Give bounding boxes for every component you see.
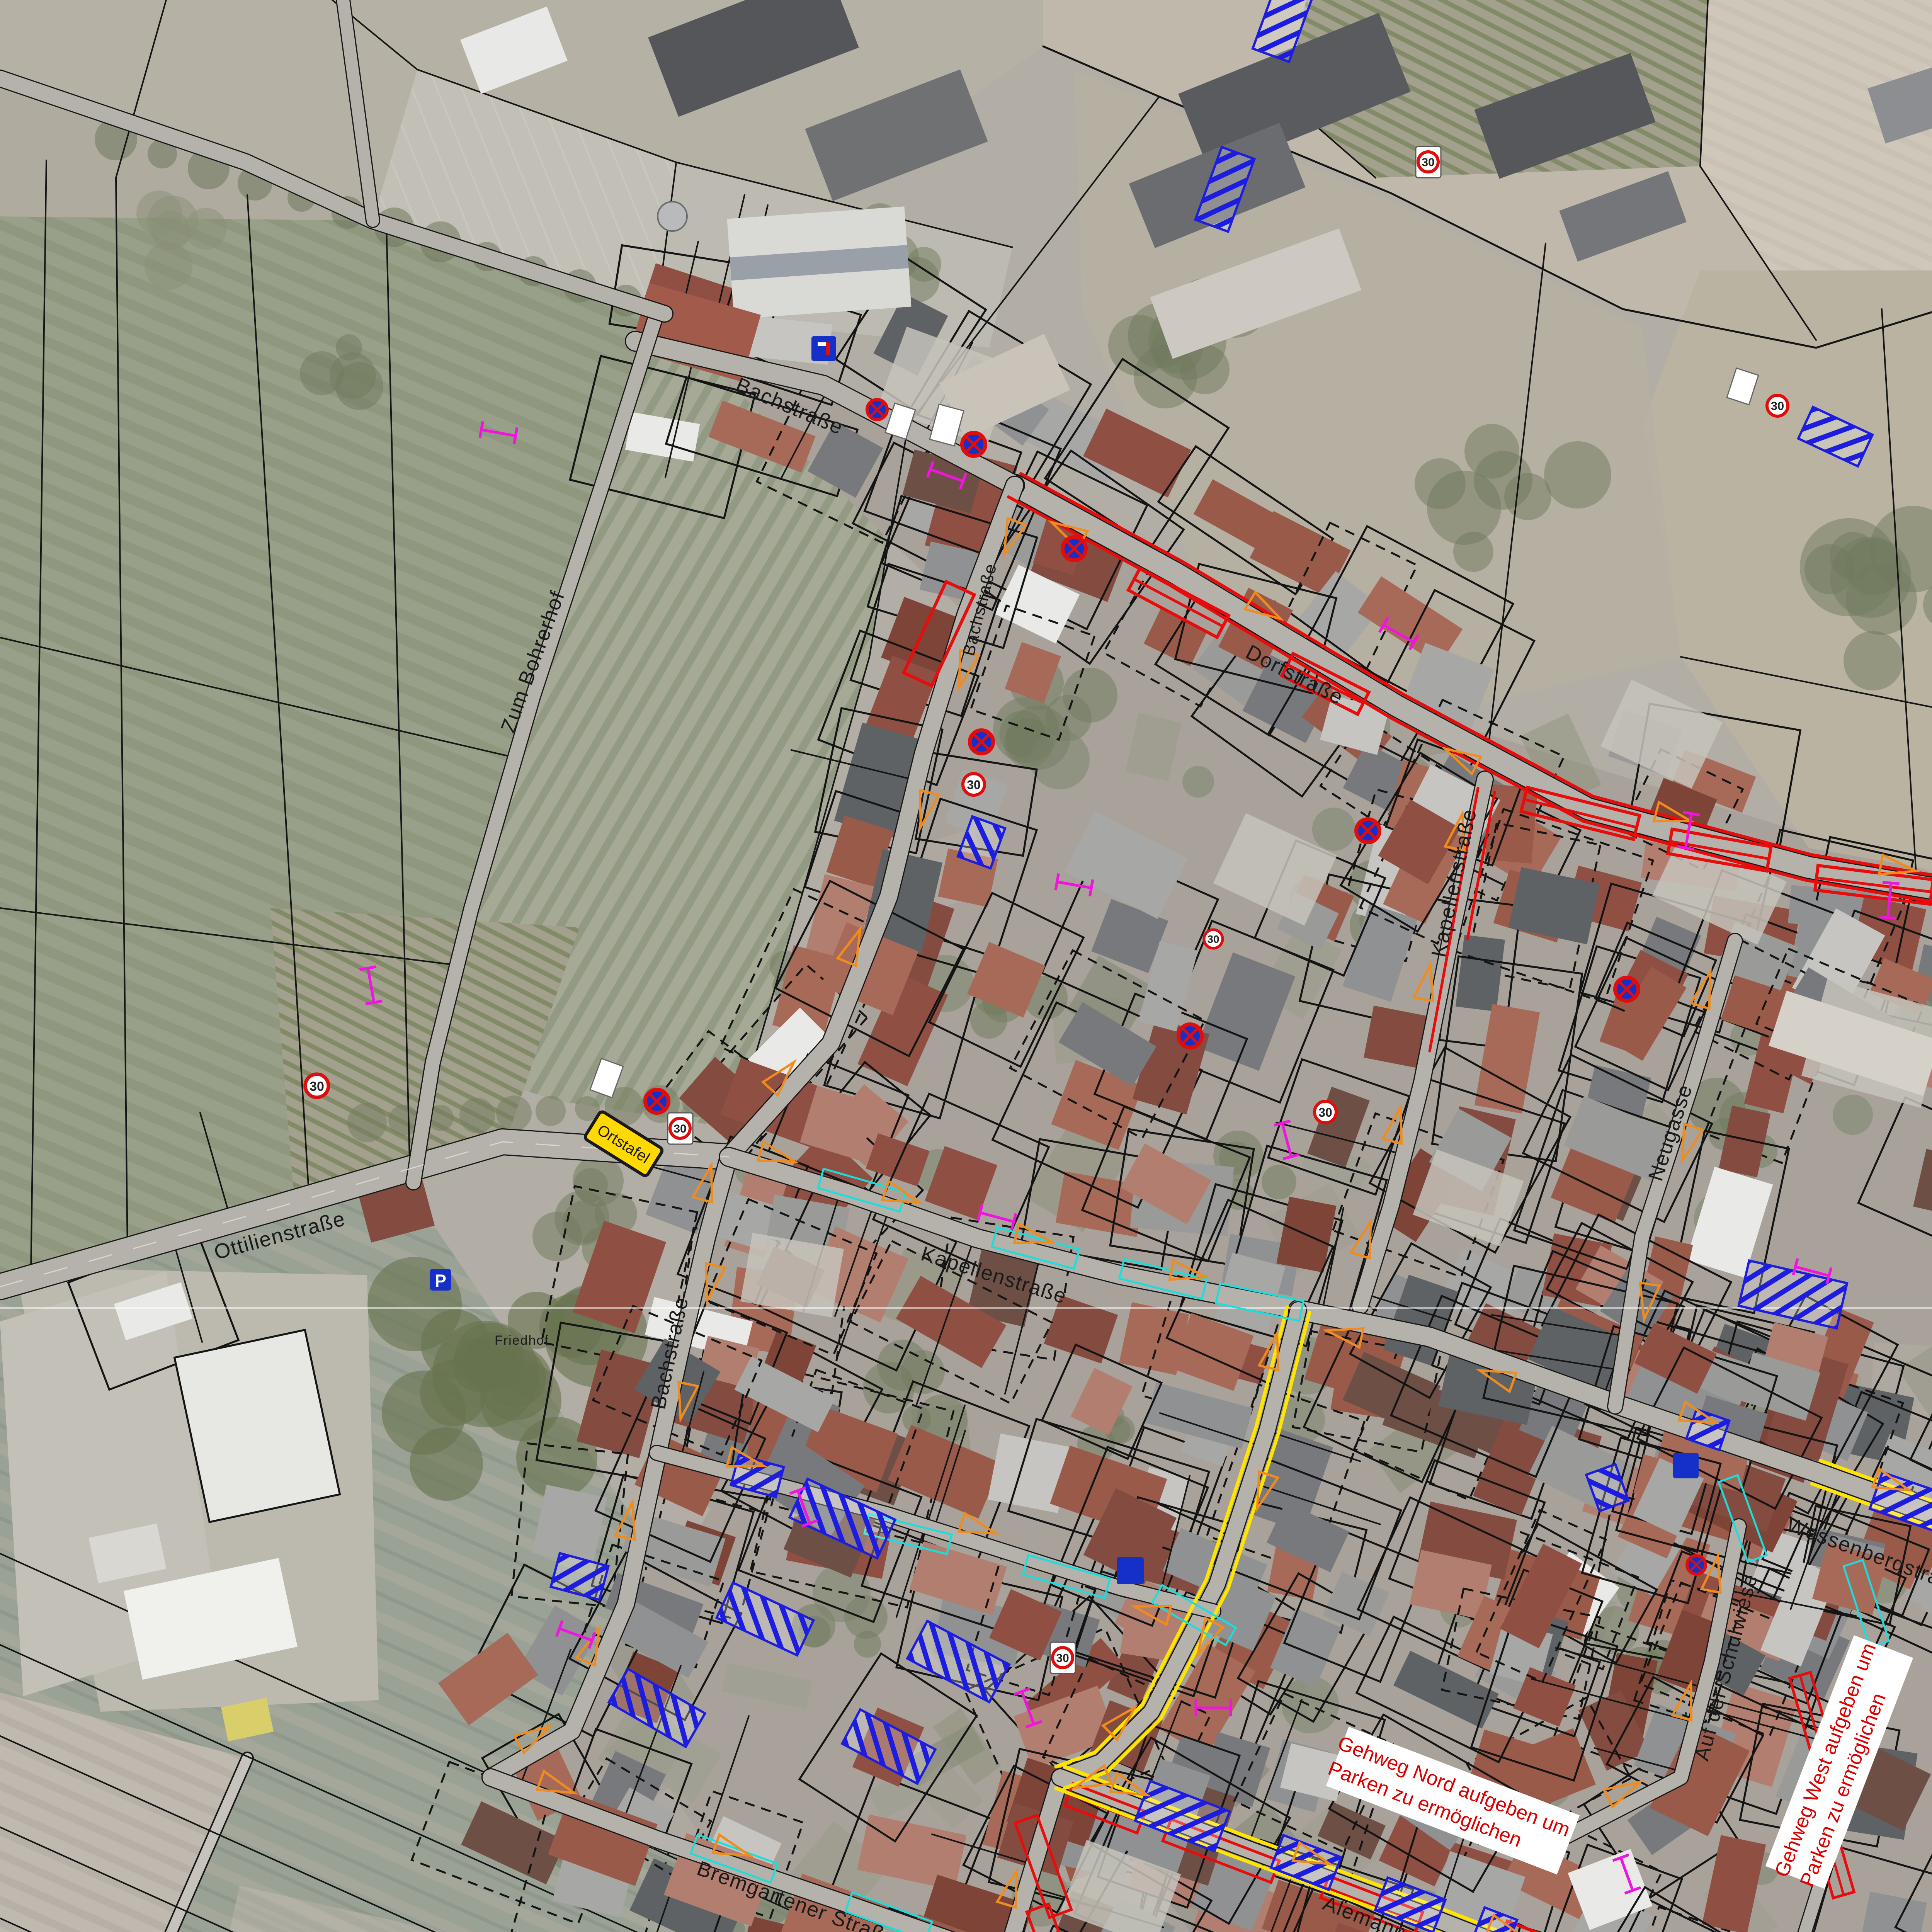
svg-text:30: 30 <box>673 1122 686 1135</box>
svg-text:P: P <box>435 1271 446 1291</box>
svg-text:30: 30 <box>1056 1652 1069 1665</box>
svg-text:30: 30 <box>1422 156 1434 169</box>
svg-text:30: 30 <box>1207 933 1219 945</box>
svg-text:30: 30 <box>310 1079 324 1094</box>
svg-text:30: 30 <box>1771 399 1784 413</box>
svg-text:30: 30 <box>967 778 981 792</box>
svg-text:Friedhof: Friedhof <box>495 1333 549 1348</box>
svg-text:30: 30 <box>1318 1105 1332 1119</box>
